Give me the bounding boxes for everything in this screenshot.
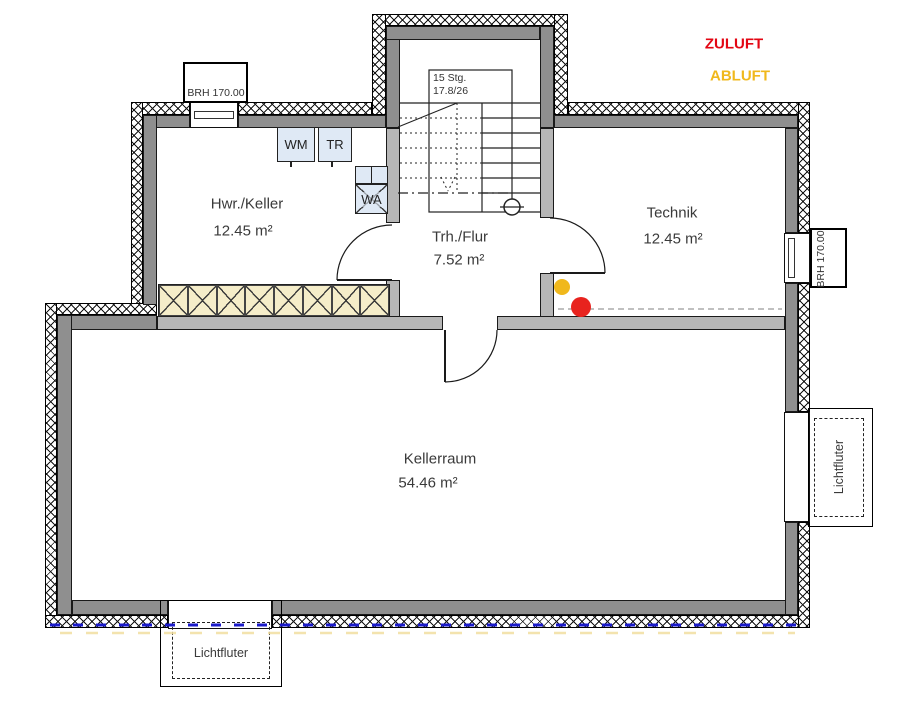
room-area-technik: 12.45 m² [643,231,702,248]
linework-overlay [0,0,918,715]
room-name-kellerraum: Kellerraum [404,451,477,468]
stair-label: 15 Stg. 17.8/26 [433,72,468,98]
room-name-technik: Technik [647,205,698,222]
legend-zuluft: ZULUFT [705,36,763,53]
floor-plan: BRH 170.00 BRH 170.00 Lichtfluter Lichtf… [0,0,918,715]
abluft-dot [554,279,570,295]
zuluft-dot [571,297,591,317]
stair-label-line1: 15 Stg. [433,72,468,85]
door-kellerraum [445,330,497,382]
door-hwr-keller [337,225,392,280]
stair-label-line2: 17.8/26 [433,85,468,98]
door-technik [550,218,605,273]
room-name-hwr: Hwr./Keller [211,196,284,213]
room-name-trh: Trh./Flur [432,229,488,246]
room-area-kellerraum: 54.46 m² [398,475,457,492]
stair [398,70,540,215]
room-area-hwr: 12.45 m² [213,223,272,240]
room-area-trh: 7.52 m² [434,252,485,269]
legend-abluft: ABLUFT [710,68,770,85]
